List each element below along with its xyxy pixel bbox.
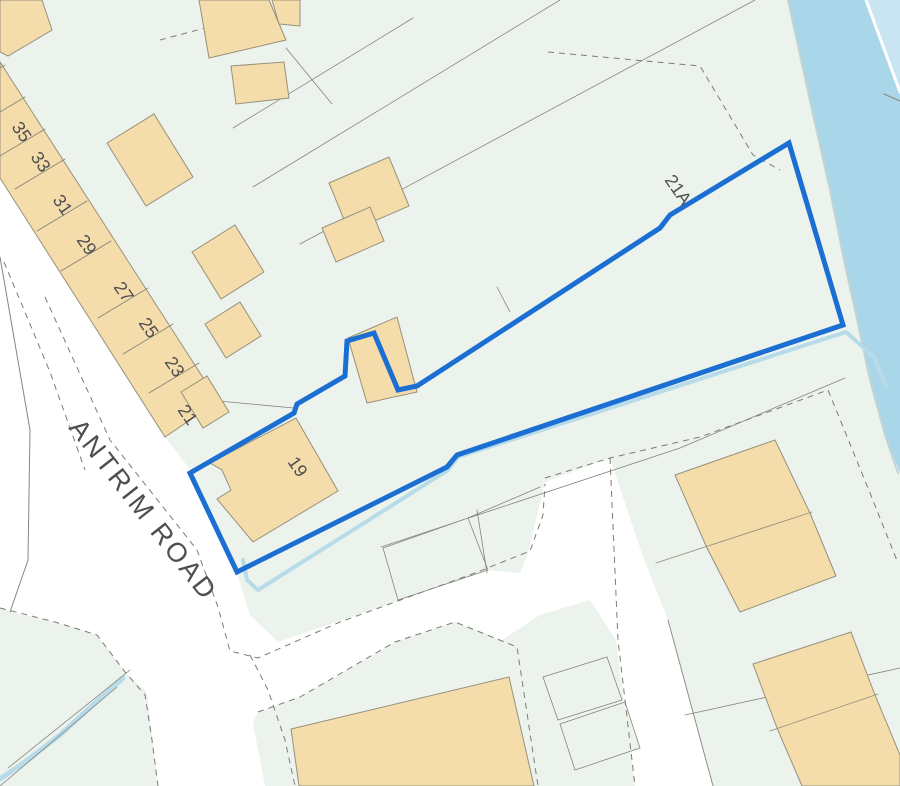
building-top-center-small [231,62,289,104]
map-canvas: ANTRIM ROAD35333129272523211921A [0,0,900,786]
map-plan: ANTRIM ROAD35333129272523211921A [0,0,900,786]
